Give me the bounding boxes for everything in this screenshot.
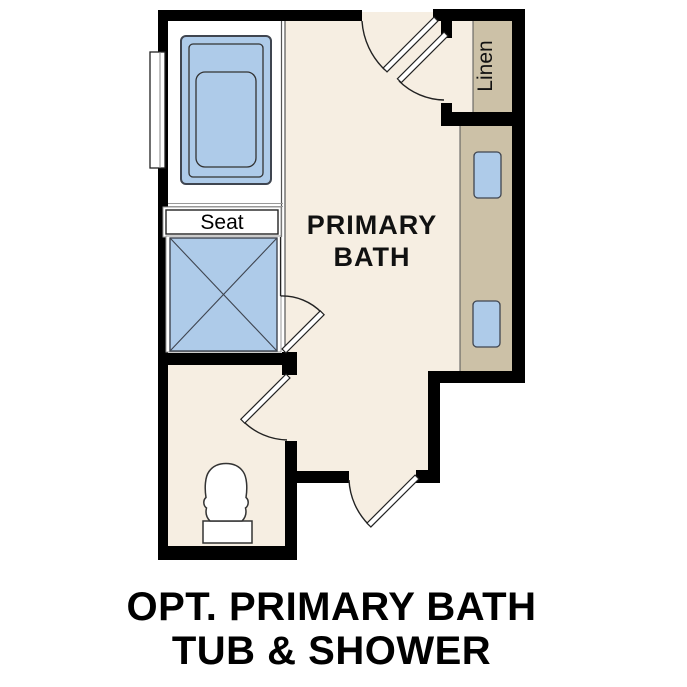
shower-pan [166,236,281,352]
window [150,52,165,168]
seat-label: Seat [200,211,243,234]
primary-bath-label-line2: BATH [334,242,411,272]
sink-top [474,152,501,198]
primary-bath-label-line1: PRIMARY [307,210,438,240]
plan-caption: OPT. PRIMARY BATH TUB & SHOWER [0,585,687,673]
toilet-fixture [203,464,252,544]
plan-caption-line2: TUB & SHOWER [0,629,663,673]
sink-bottom [473,301,500,347]
floor-plan-drawing: Seat [0,0,687,687]
bathtub-fixture [181,36,271,184]
shower-seat: Seat [163,207,281,237]
plan-caption-line1: OPT. PRIMARY BATH [0,585,663,629]
floor-plan-page: Seat [0,0,687,687]
linen-label: Linen [474,40,497,91]
